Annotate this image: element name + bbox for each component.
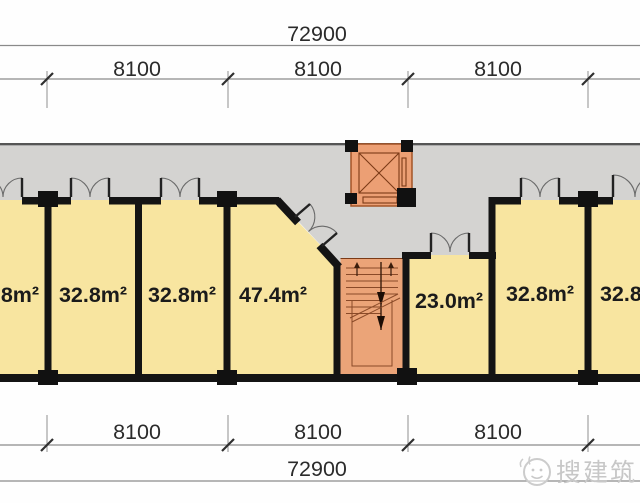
watermark: 搜建筑	[520, 457, 637, 488]
staircase-floor	[341, 258, 403, 378]
dim-top-bay3-label: 8100	[474, 57, 522, 81]
dim-bottom-bay2-label: 8100	[294, 420, 342, 444]
watermark-text: 搜建筑	[556, 459, 637, 487]
floor-plan-canvas: 72900 8100 8100 8100	[0, 0, 640, 503]
dim-bottom-bay3-label: 8100	[474, 420, 522, 444]
building-plan: 32.8m² 32.8m² 32.8m² 47.4m² 23.0m² 32.8m…	[0, 140, 640, 385]
dim-bottom-total-label: 72900	[287, 457, 347, 481]
staircase	[341, 258, 403, 378]
room-1-area-label: 32.8m²	[0, 283, 39, 307]
dim-top-bay2-label: 8100	[294, 57, 342, 81]
dim-top-total-label: 72900	[287, 22, 347, 46]
floor-plan-page: 72900 8100 8100 8100	[0, 0, 640, 503]
building-top-edge	[0, 143, 640, 146]
room-2-area-label: 32.8m²	[59, 283, 127, 307]
dim-top-bay1-label: 8100	[113, 57, 161, 81]
room-3-area-label: 32.8m²	[148, 283, 216, 307]
room-7-area-label: 32.8m²	[600, 282, 640, 306]
dim-bottom-bay1-label: 8100	[113, 420, 161, 444]
room-4-area-label: 47.4m²	[239, 283, 307, 307]
room-6-area-label: 32.8m²	[506, 282, 574, 306]
room-5-area-label: 23.0m²	[415, 289, 483, 313]
room-5	[410, 255, 489, 378]
